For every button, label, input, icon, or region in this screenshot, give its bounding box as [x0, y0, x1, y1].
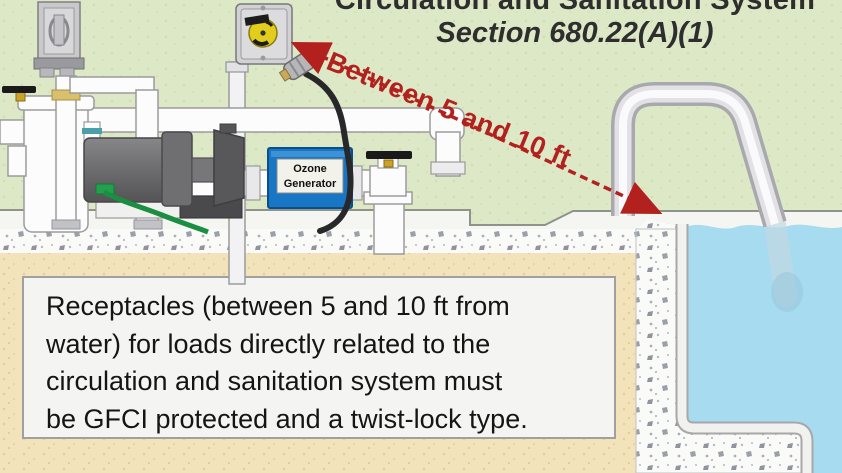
- pipe-union-teal: [82, 128, 102, 134]
- chlorinator-canister: [34, 2, 84, 77]
- callout-box: [23, 277, 615, 438]
- pump-housing: [214, 130, 244, 206]
- handrail-water-blur: [771, 272, 803, 312]
- valve-handle: [366, 151, 412, 159]
- diagram-canvas: Circulation and Sanitation System Sectio…: [0, 0, 842, 473]
- valve-stem: [384, 160, 393, 167]
- pool-equipment-scene: [0, 0, 842, 473]
- ozone-generator: [268, 148, 352, 208]
- receptacle-box: [236, 4, 292, 64]
- valve-handle: [2, 86, 36, 93]
- pump-shaft: [192, 158, 214, 182]
- valve-stem: [16, 92, 25, 101]
- ozone-generator-label-plate: [277, 159, 343, 193]
- gravel-band: [0, 229, 686, 254]
